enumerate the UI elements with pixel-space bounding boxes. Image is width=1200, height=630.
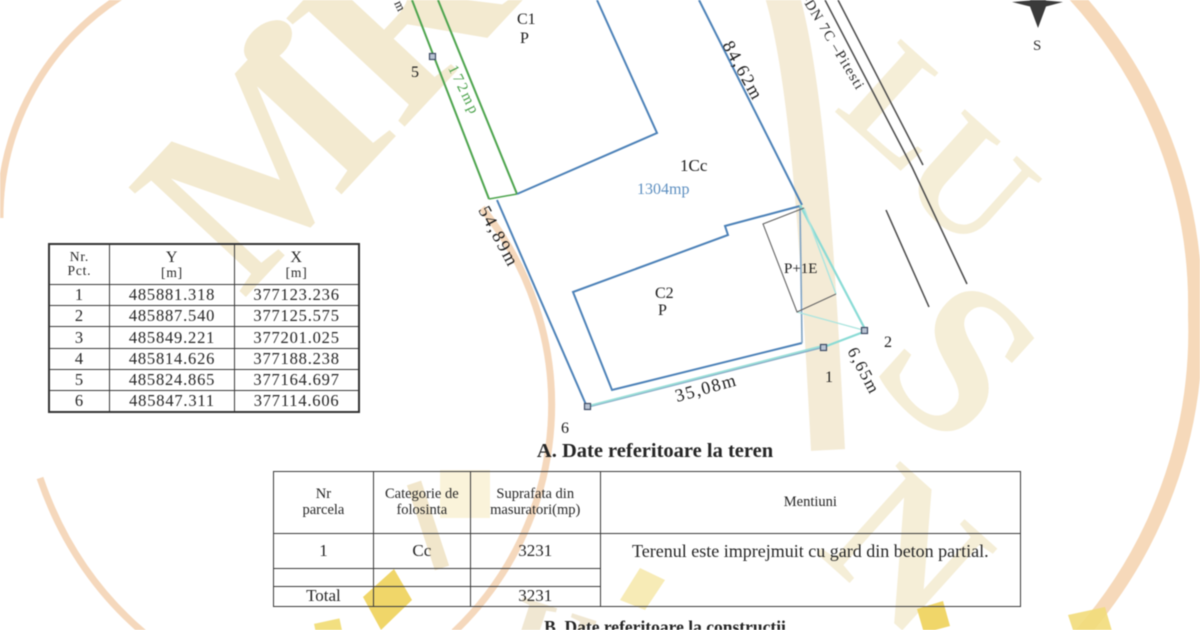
svg-text:1Cc: 1Cc xyxy=(680,156,708,175)
svg-text:S: S xyxy=(1033,38,1041,54)
svg-text:m: m xyxy=(391,0,409,13)
svg-text:1304mp: 1304mp xyxy=(637,181,689,198)
svg-text:6,65m: 6,65m xyxy=(843,344,883,397)
svg-text:2: 2 xyxy=(884,334,892,351)
svg-text:C2: C2 xyxy=(655,285,674,302)
svg-text:P: P xyxy=(520,30,529,47)
svg-text:5: 5 xyxy=(411,64,419,81)
svg-text:172mp: 172mp xyxy=(444,63,482,119)
svg-text:C1: C1 xyxy=(517,11,536,28)
svg-text:54,89m: 54,89m xyxy=(474,202,523,270)
svg-text:1: 1 xyxy=(825,369,833,386)
svg-text:P: P xyxy=(658,302,667,319)
svg-text:6: 6 xyxy=(561,420,569,437)
svg-text:P+1E: P+1E xyxy=(784,261,817,277)
svg-text:84,62m: 84,62m xyxy=(719,37,768,104)
